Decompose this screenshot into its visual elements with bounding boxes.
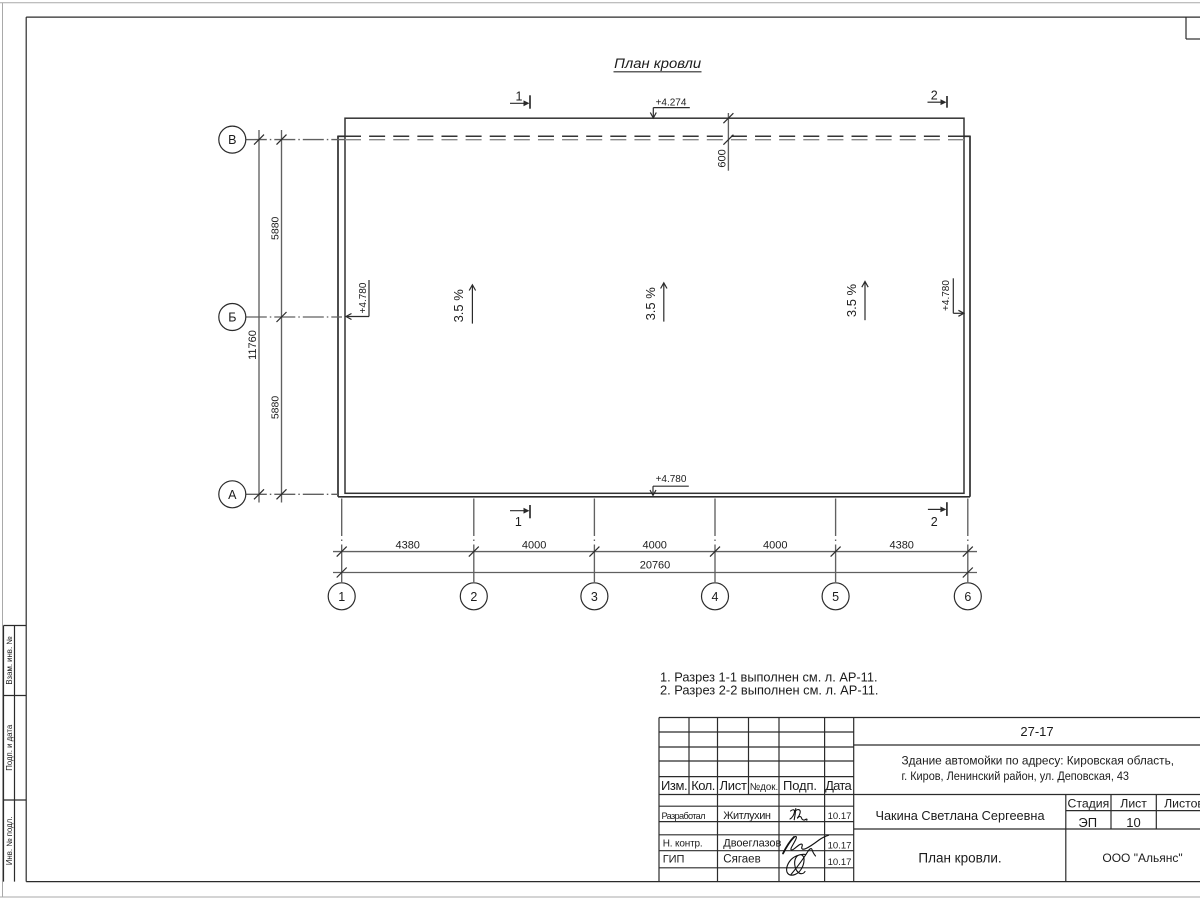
svg-text:2: 2 xyxy=(931,89,938,103)
svg-text:4000: 4000 xyxy=(763,540,787,552)
svg-text:Инв. № подл.: Инв. № подл. xyxy=(5,817,14,866)
svg-text:Дата: Дата xyxy=(825,778,852,793)
svg-text:Листов: Листов xyxy=(1164,796,1200,810)
svg-text:г. Киров, Ленинский район, ул.: г. Киров, Ленинский район, ул. Деповская… xyxy=(902,769,1130,783)
svg-text:600: 600 xyxy=(716,149,728,167)
svg-text:11760: 11760 xyxy=(247,330,259,360)
svg-text:ЭП: ЭП xyxy=(1078,815,1097,830)
svg-text:5: 5 xyxy=(832,590,839,604)
svg-text:10.17: 10.17 xyxy=(828,857,852,868)
svg-text:Разработал: Разработал xyxy=(662,811,706,821)
svg-text:+4.780: +4.780 xyxy=(358,282,369,313)
svg-text:А: А xyxy=(228,488,237,502)
svg-text:В: В xyxy=(228,133,236,147)
svg-text:ГИП: ГИП xyxy=(663,854,685,866)
svg-text:1: 1 xyxy=(515,515,522,529)
svg-text:4: 4 xyxy=(712,590,719,604)
svg-text:+4.274: +4.274 xyxy=(656,98,687,109)
svg-text:3: 3 xyxy=(591,590,598,604)
svg-text:Лист: Лист xyxy=(1120,796,1147,810)
svg-text:3.5 %: 3.5 % xyxy=(844,283,859,317)
svg-text:№док.: №док. xyxy=(750,782,778,793)
svg-text:27-17: 27-17 xyxy=(1020,724,1053,739)
svg-text:3.5 %: 3.5 % xyxy=(643,287,658,321)
svg-text:2: 2 xyxy=(470,590,477,604)
svg-text:Подп. и дата: Подп. и дата xyxy=(5,724,14,771)
svg-text:Житлухин: Житлухин xyxy=(723,810,771,822)
svg-text:2: 2 xyxy=(931,515,938,529)
svg-text:Стадия: Стадия xyxy=(1068,796,1110,810)
svg-text:4380: 4380 xyxy=(889,540,913,552)
svg-text:Изм.: Изм. xyxy=(661,778,688,793)
svg-text:Сягаев: Сягаев xyxy=(723,854,760,866)
svg-text:20760: 20760 xyxy=(640,560,671,572)
svg-text:Лист: Лист xyxy=(719,778,747,793)
svg-text:5880: 5880 xyxy=(270,396,282,420)
svg-text:10: 10 xyxy=(1126,815,1140,830)
svg-text:5880: 5880 xyxy=(270,216,282,240)
svg-text:План кровли.: План кровли. xyxy=(918,851,1001,866)
svg-text:6: 6 xyxy=(964,590,971,604)
svg-text:4000: 4000 xyxy=(642,540,666,552)
svg-text:Взам. инв. №: Взам. инв. № xyxy=(5,636,14,684)
svg-text:План кровли: План кровли xyxy=(614,56,702,71)
svg-text:+4.780: +4.780 xyxy=(656,474,687,485)
svg-text:4000: 4000 xyxy=(522,540,546,552)
svg-text:Двоеглазов: Двоеглазов xyxy=(723,838,781,850)
svg-text:Б: Б xyxy=(228,311,236,325)
svg-text:Чакина Светлана Сергеевна: Чакина Светлана Сергеевна xyxy=(875,808,1045,823)
svg-text:1: 1 xyxy=(516,90,523,104)
svg-text:10.17: 10.17 xyxy=(828,811,852,822)
svg-text:Подп.: Подп. xyxy=(783,778,817,793)
svg-text:Кол.: Кол. xyxy=(691,778,715,793)
svg-text:+4.780: +4.780 xyxy=(941,280,952,311)
svg-text:3.5 %: 3.5 % xyxy=(451,289,466,323)
svg-text:Здание автомойки по адресу: Ки: Здание автомойки по адресу: Кировская об… xyxy=(902,754,1175,768)
svg-text:1: 1 xyxy=(338,590,345,604)
svg-text:ООО "Альянс": ООО "Альянс" xyxy=(1102,851,1182,865)
svg-text:2. Разрез 2-2 выполнен см. л.: 2. Разрез 2-2 выполнен см. л. АР-11. xyxy=(660,682,879,697)
svg-text:Н. контр.: Н. контр. xyxy=(663,838,703,849)
svg-text:4380: 4380 xyxy=(395,540,419,552)
svg-text:10.17: 10.17 xyxy=(828,841,852,852)
